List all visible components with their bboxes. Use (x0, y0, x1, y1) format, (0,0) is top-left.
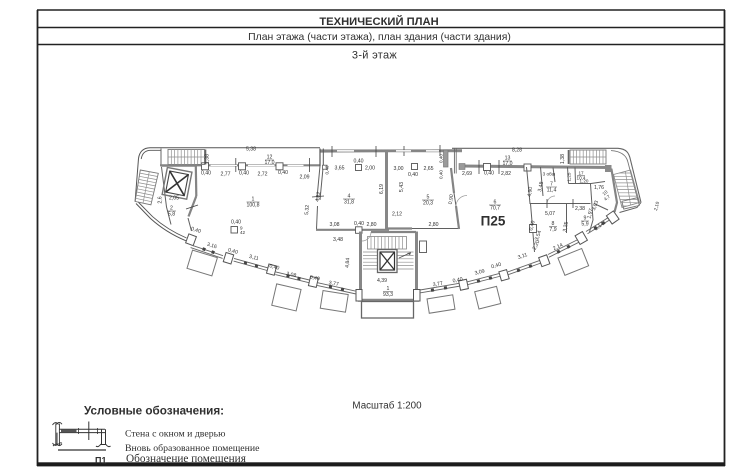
svg-text:Стена с окном и дверью: Стена с окном и дверью (125, 429, 225, 440)
svg-text:93,3: 93,3 (383, 292, 393, 298)
svg-text:5,32: 5,32 (304, 205, 311, 216)
svg-text:1,76: 1,76 (594, 185, 604, 191)
svg-text:1,38: 1,38 (560, 154, 566, 164)
svg-text:0,40: 0,40 (408, 172, 418, 178)
svg-text:0,40: 0,40 (278, 170, 288, 176)
svg-text:2,69: 2,69 (462, 171, 472, 177)
svg-text:2,6: 2,6 (158, 196, 164, 203)
svg-text:1,38: 1,38 (205, 154, 211, 164)
svg-text:Условные обозначения:: Условные обозначения: (84, 405, 224, 418)
svg-text:2,80: 2,80 (366, 222, 376, 228)
svg-text:5,8: 5,8 (168, 212, 175, 218)
svg-text:42: 42 (240, 230, 246, 235)
svg-text:0,40: 0,40 (325, 165, 330, 174)
svg-text:Масштаб 1:200: Масштаб 1:200 (352, 401, 422, 412)
svg-text:3 обш: 3 обш (543, 172, 556, 177)
svg-text:0,40: 0,40 (239, 171, 249, 177)
svg-text:11,4: 11,4 (547, 188, 557, 194)
svg-text:0,40: 0,40 (439, 170, 444, 179)
svg-text:0,40: 0,40 (201, 171, 211, 177)
svg-text:2,65: 2,65 (423, 166, 433, 172)
svg-text:7,9: 7,9 (549, 227, 556, 233)
svg-text:3,00: 3,00 (393, 166, 403, 172)
svg-text:3,08: 3,08 (329, 222, 339, 228)
svg-text:5,07: 5,07 (545, 211, 555, 217)
svg-text:20,3: 20,3 (423, 201, 433, 207)
svg-text:ТЕХНИЧЕСКИЙ ПЛАН: ТЕХНИЧЕСКИЙ ПЛАН (319, 15, 438, 28)
svg-text:0,40: 0,40 (439, 154, 444, 163)
svg-text:4,84: 4,84 (345, 258, 352, 269)
svg-text:100,8: 100,8 (247, 203, 260, 209)
svg-text:Обозначение помещения: Обозначение помещения (126, 453, 246, 465)
svg-text:2,38: 2,38 (575, 206, 585, 212)
svg-text:2,80: 2,80 (428, 222, 438, 228)
svg-text:4,39: 4,39 (377, 278, 387, 284)
svg-text:0,40: 0,40 (353, 159, 363, 165)
svg-text:2,05: 2,05 (169, 196, 179, 202)
svg-text:2,82: 2,82 (501, 171, 511, 177)
svg-text:5,38: 5,38 (246, 147, 256, 153)
svg-text:5,43: 5,43 (399, 182, 405, 192)
svg-text:2,00: 2,00 (365, 166, 375, 172)
svg-text:2,72: 2,72 (257, 172, 267, 178)
svg-text:3,48: 3,48 (333, 237, 343, 243)
svg-text:0,40: 0,40 (354, 221, 364, 227)
svg-text:3,65: 3,65 (334, 166, 344, 172)
svg-text:8,28: 8,28 (512, 148, 522, 154)
svg-text:План этажа (части этажа), план: План этажа (части этажа), план здания (ч… (248, 32, 511, 43)
svg-text:3-й этаж: 3-й этаж (352, 50, 397, 62)
svg-text:1,20: 1,20 (580, 179, 589, 184)
svg-text:70,7: 70,7 (490, 206, 500, 212)
svg-text:П1: П1 (95, 456, 106, 466)
svg-text:31,8: 31,8 (344, 200, 354, 206)
svg-text:2,77: 2,77 (220, 172, 230, 178)
svg-text:2,12: 2,12 (392, 212, 402, 218)
svg-text:17,0: 17,0 (264, 160, 274, 166)
svg-text:6,19: 6,19 (379, 184, 385, 194)
svg-text:5,9: 5,9 (581, 222, 588, 228)
svg-text:17,0: 17,0 (502, 161, 512, 167)
svg-text:П25: П25 (481, 214, 506, 229)
svg-text:2,09: 2,09 (299, 175, 309, 181)
svg-text:0,40: 0,40 (484, 171, 494, 177)
svg-text:1,25: 1,25 (567, 172, 572, 181)
